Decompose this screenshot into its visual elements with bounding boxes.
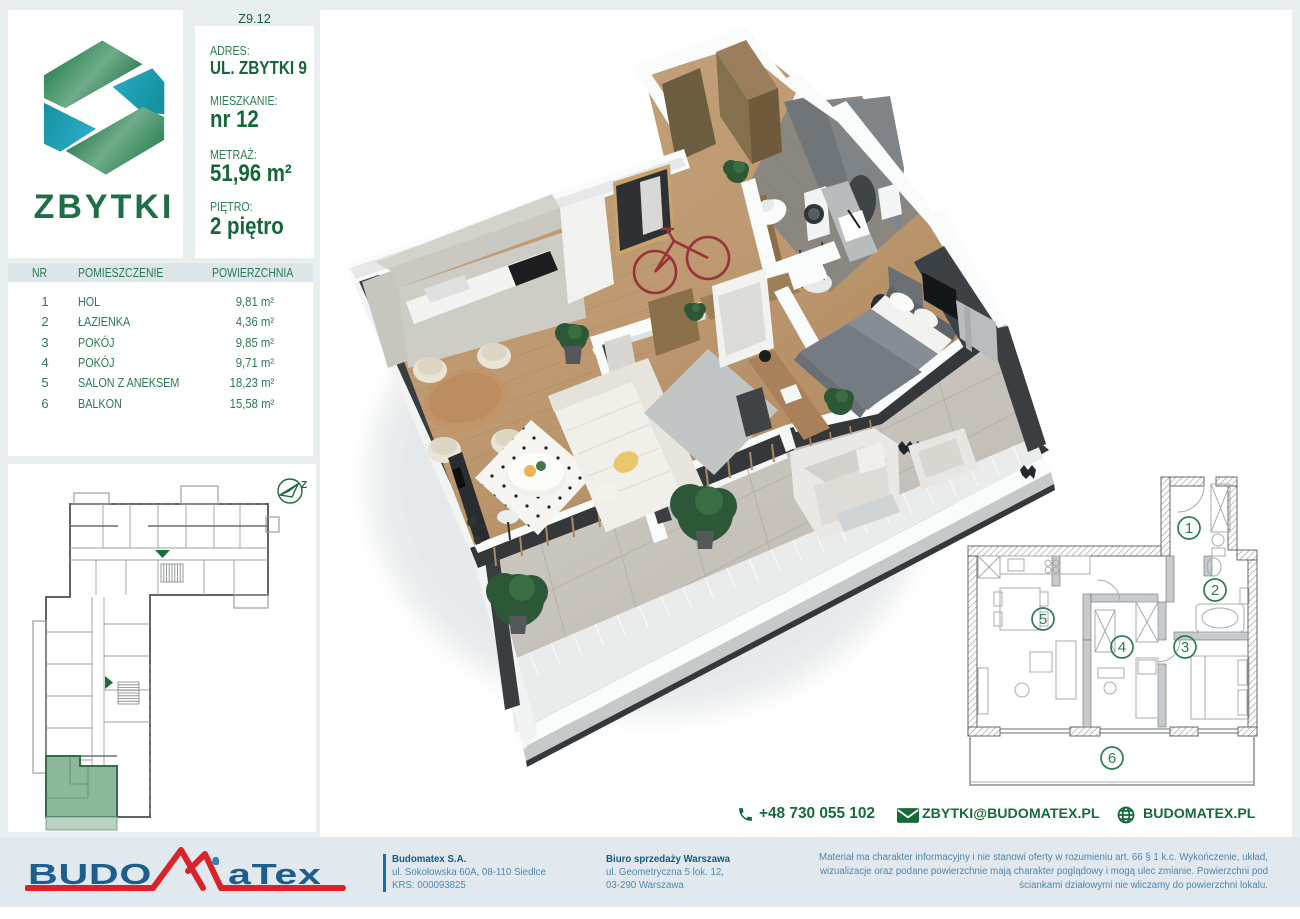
svg-text:5: 5 [1039,611,1047,628]
svg-text:Z: Z [301,480,307,491]
svg-text:3: 3 [1181,639,1189,656]
svg-text:4: 4 [1118,639,1126,656]
svg-text:2: 2 [1211,582,1219,599]
svg-text:1: 1 [1185,520,1193,537]
svg-text:ZBYTKI: ZBYTKI [34,188,175,226]
svg-text:6: 6 [1108,750,1116,767]
